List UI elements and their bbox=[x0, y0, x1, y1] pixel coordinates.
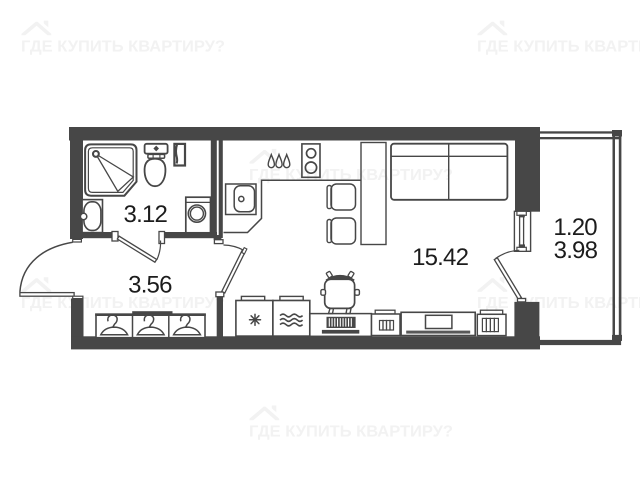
svg-text:ГДЕ КУПИТЬ КВАРТИРУ?: ГДЕ КУПИТЬ КВАРТИРУ? bbox=[249, 167, 453, 184]
svg-text:ГДЕ КУПИТЬ КВАРТИРУ?: ГДЕ КУПИТЬ КВАРТИРУ? bbox=[249, 423, 453, 440]
svg-text:ГДЕ КУПИТЬ КВАРТИРУ?: ГДЕ КУПИТЬ КВАРТИРУ? bbox=[21, 39, 225, 56]
svg-text:ГДЕ КУПИТЬ КВАРТИРУ?: ГДЕ КУПИТЬ КВАРТИРУ? bbox=[477, 39, 640, 56]
svg-text:15.42: 15.42 bbox=[412, 244, 469, 271]
svg-text:3.56: 3.56 bbox=[128, 271, 172, 298]
svg-text:3.98: 3.98 bbox=[554, 237, 598, 264]
svg-text:3.12: 3.12 bbox=[124, 201, 168, 228]
svg-text:ГДЕ КУПИТЬ КВАРТИРУ?: ГДЕ КУПИТЬ КВАРТИРУ? bbox=[21, 295, 225, 312]
